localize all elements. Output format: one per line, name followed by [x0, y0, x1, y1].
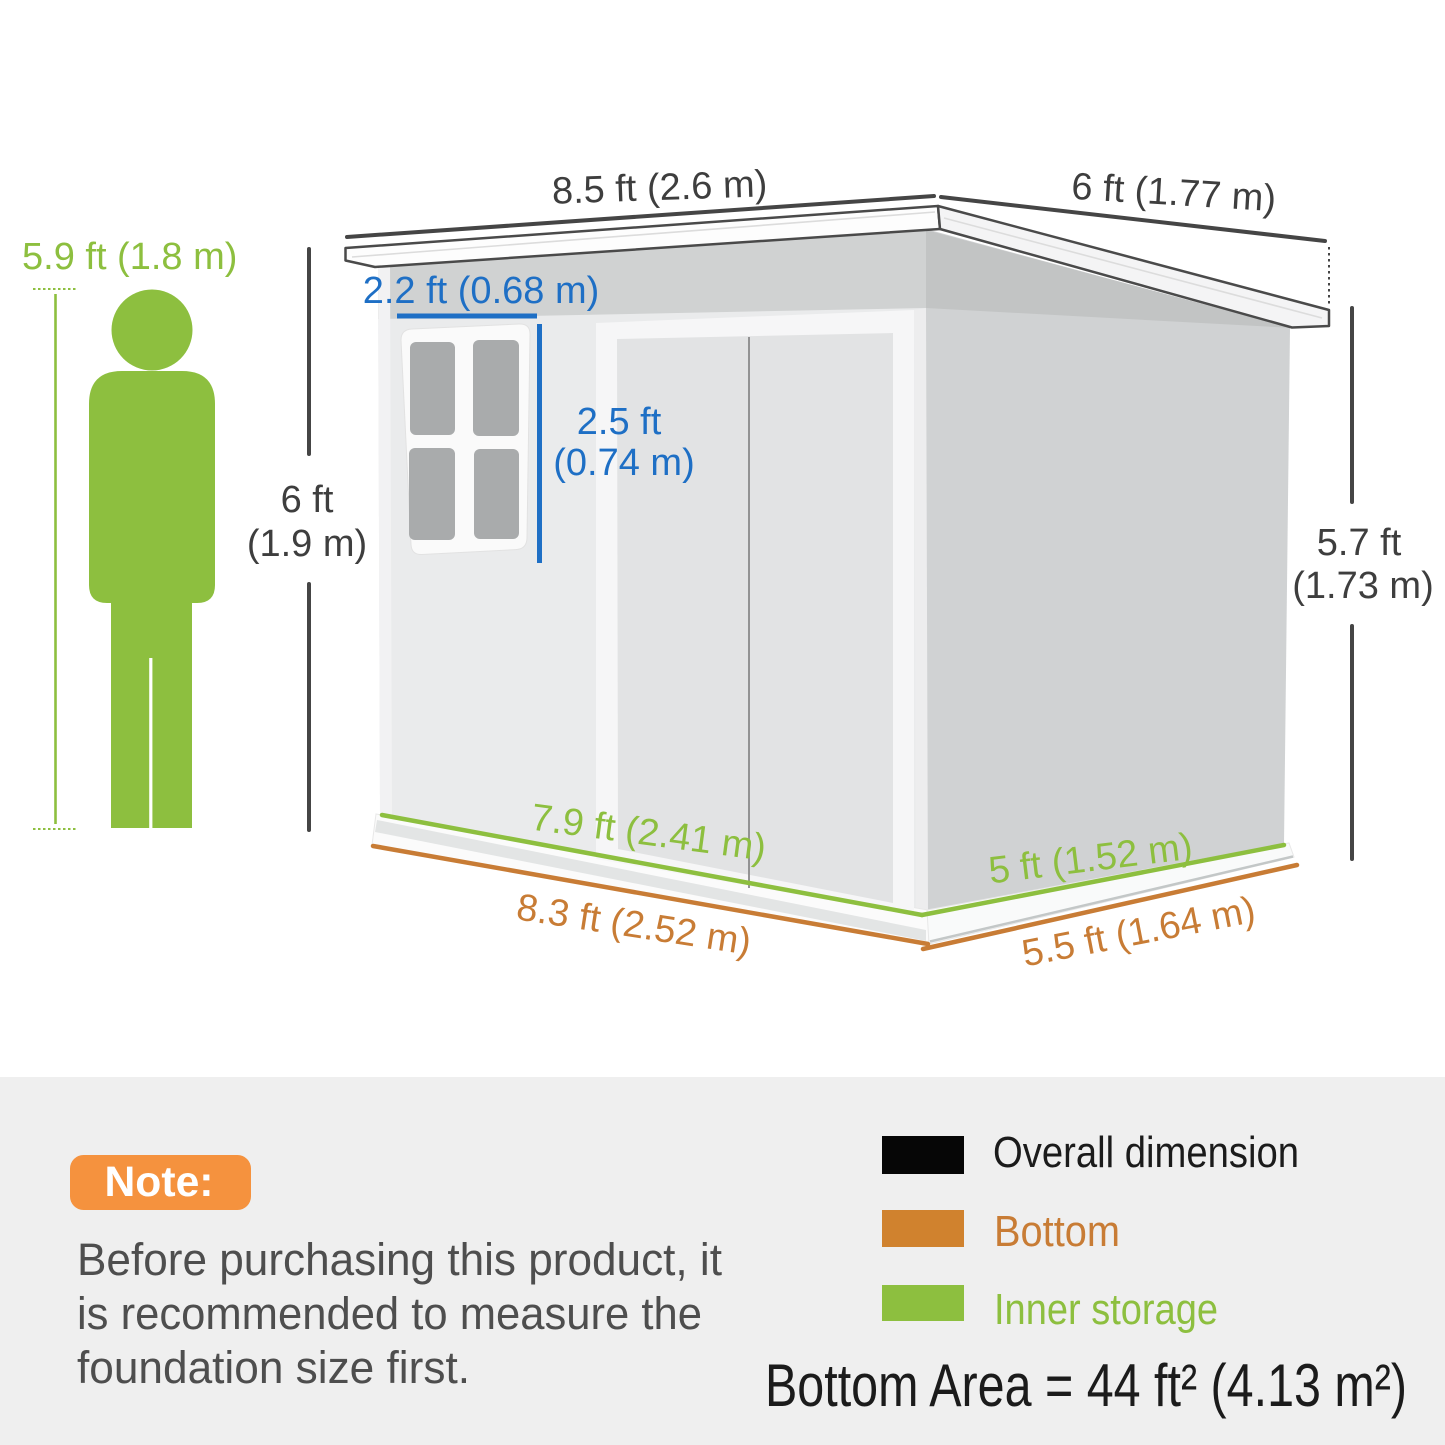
svg-text:Overall dimension: Overall dimension — [993, 1128, 1299, 1177]
svg-text:5.9 ft (1.8 m): 5.9 ft (1.8 m) — [22, 236, 237, 278]
svg-text:2.5 ft: 2.5 ft — [577, 401, 662, 443]
svg-text:Inner storage: Inner storage — [994, 1285, 1218, 1334]
svg-text:(0.74 m): (0.74 m) — [553, 442, 694, 484]
svg-text:5.7 ft: 5.7 ft — [1317, 522, 1402, 564]
svg-text:Before purchasing this product: Before purchasing this product, it — [77, 1234, 722, 1285]
svg-text:Bottom: Bottom — [994, 1207, 1120, 1256]
svg-text:foundation size first.: foundation size first. — [77, 1342, 470, 1393]
svg-text:Note:: Note: — [105, 1158, 214, 1206]
svg-text:6 ft: 6 ft — [281, 479, 334, 521]
svg-text:8.5 ft (2.6 m): 8.5 ft (2.6 m) — [551, 163, 768, 212]
svg-text:Bottom Area = 44 ft² (4.13 m²): Bottom Area = 44 ft² (4.13 m²) — [765, 1352, 1407, 1419]
svg-text:(1.73 m): (1.73 m) — [1292, 565, 1433, 607]
svg-text:is recommended to measure the: is recommended to measure the — [77, 1288, 702, 1339]
svg-text:(1.9 m): (1.9 m) — [247, 523, 367, 565]
svg-text:2.2 ft (0.68 m): 2.2 ft (0.68 m) — [363, 270, 600, 312]
